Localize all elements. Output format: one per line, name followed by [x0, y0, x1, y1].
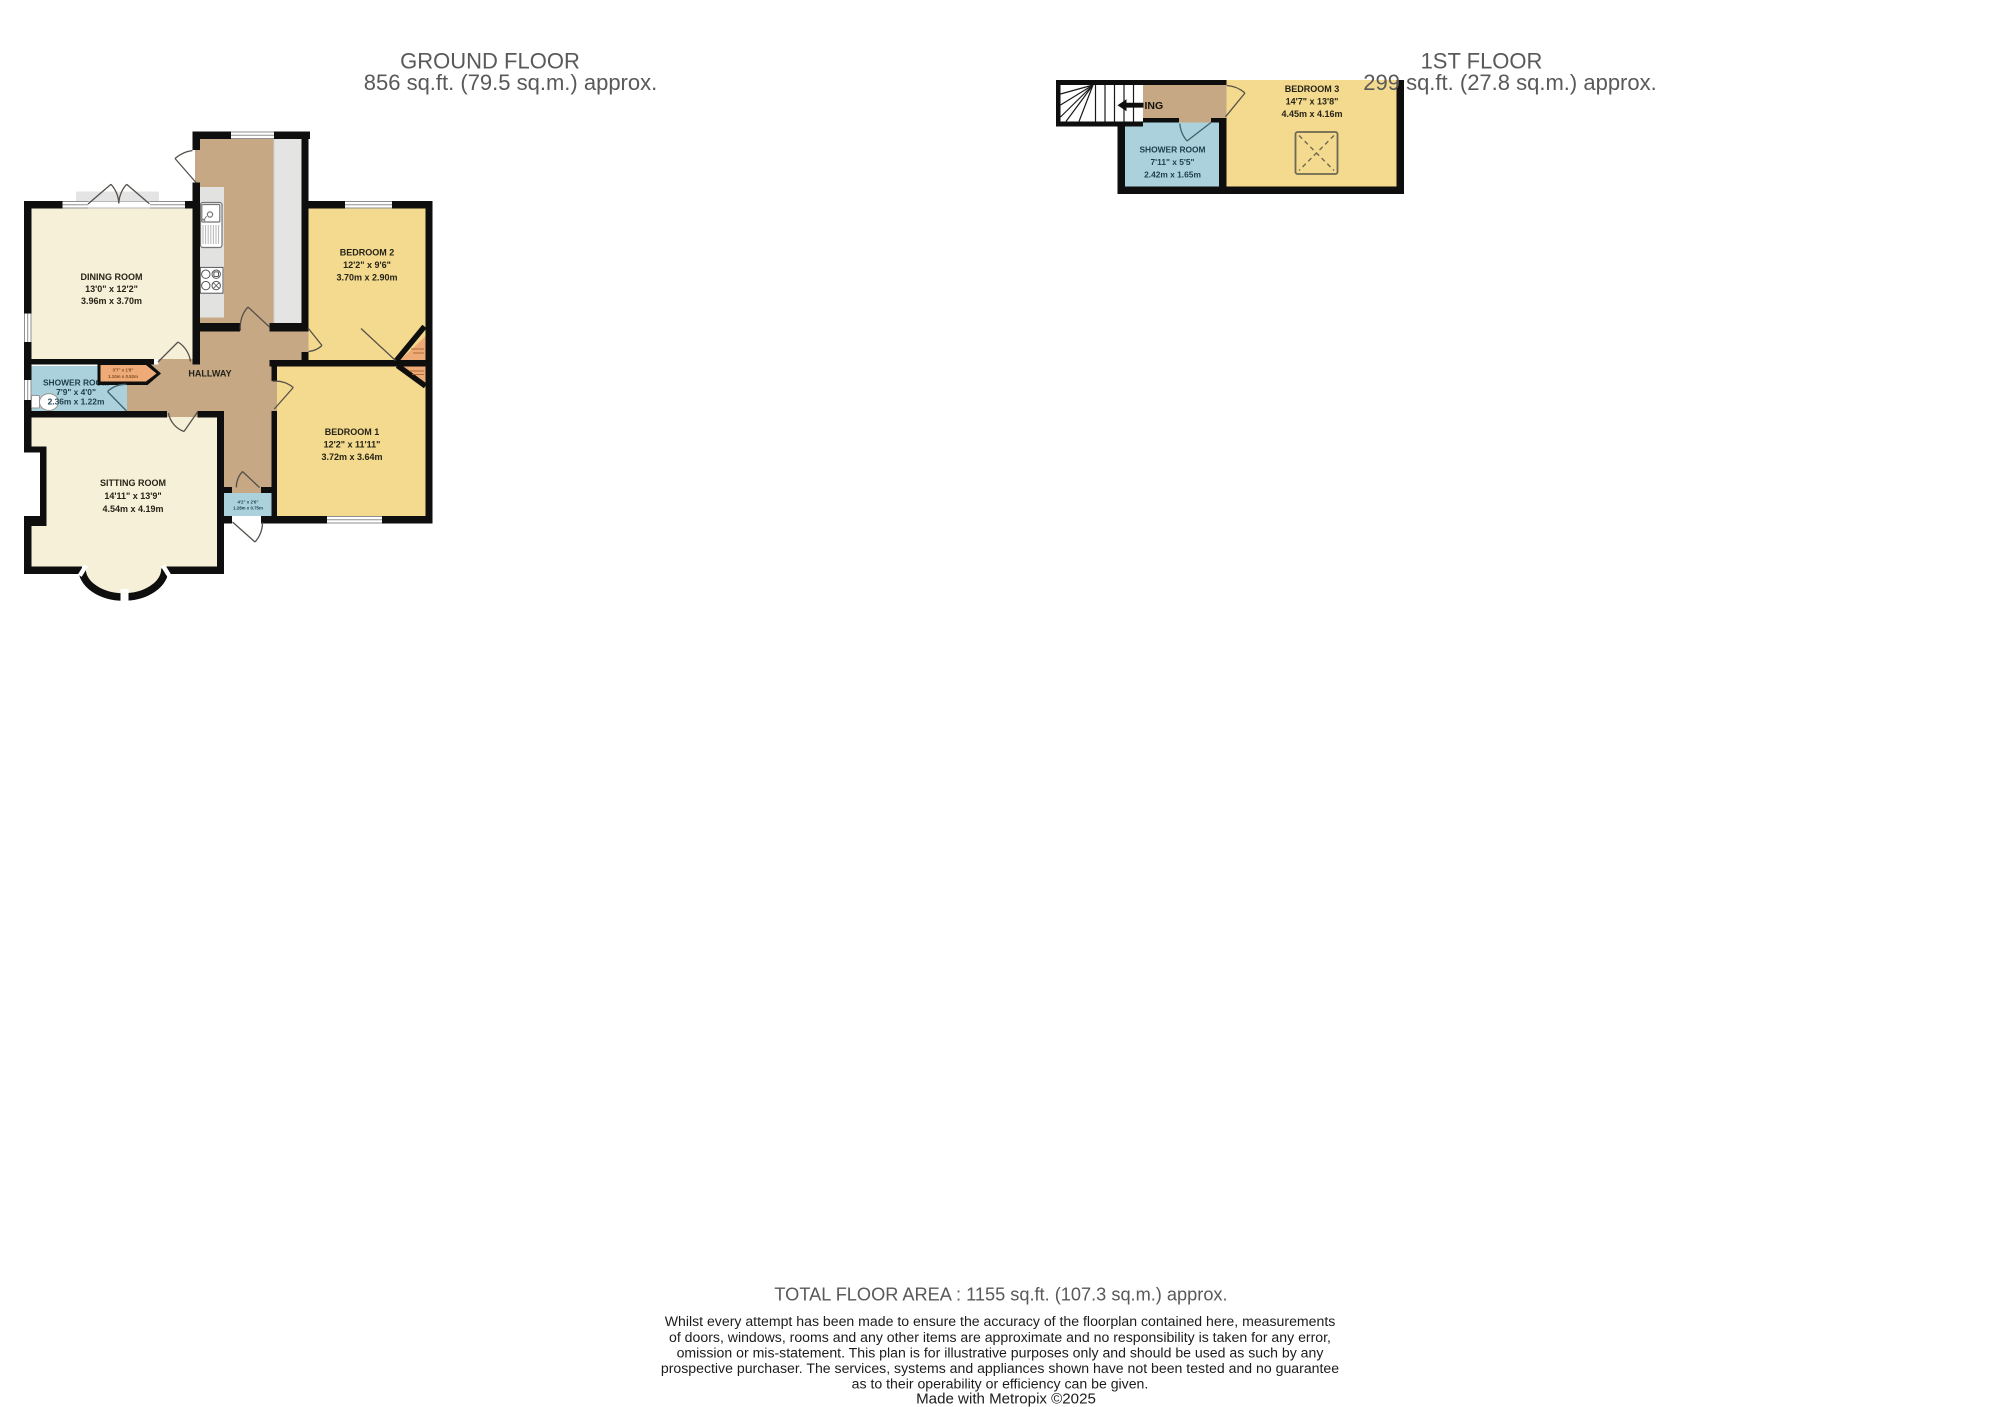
- svg-text:4.45m x 4.16m: 4.45m x 4.16m: [1281, 109, 1342, 119]
- svg-text:13'0" x 12'2": 13'0" x 12'2": [85, 284, 138, 294]
- svg-text:of doors, windows, rooms and a: of doors, windows, rooms and any other i…: [669, 1329, 1331, 1345]
- svg-text:SHOWER ROOM: SHOWER ROOM: [1139, 145, 1205, 155]
- svg-text:prospective purchaser. The ser: prospective purchaser. The services, sys…: [661, 1360, 1339, 1376]
- svg-text:1.28m x 0.75m: 1.28m x 0.75m: [233, 506, 263, 511]
- svg-text:4.54m x 4.19m: 4.54m x 4.19m: [102, 504, 163, 514]
- svg-text:1.10m x 0.52m: 1.10m x 0.52m: [108, 374, 138, 379]
- svg-text:BEDROOM 2: BEDROOM 2: [340, 248, 395, 258]
- svg-text:2.42m x 1.65m: 2.42m x 1.65m: [1144, 170, 1201, 180]
- svg-text:omission or mis-statement. Thi: omission or mis-statement. This plan is …: [677, 1344, 1325, 1360]
- svg-text:Made with Metropix ©2025: Made with Metropix ©2025: [916, 1390, 1096, 1407]
- svg-text:TOTAL FLOOR AREA : 1155 sq.ft.: TOTAL FLOOR AREA : 1155 sq.ft. (107.3 sq…: [774, 1285, 1227, 1305]
- svg-text:DINING ROOM: DINING ROOM: [81, 272, 143, 282]
- svg-text:12'2" x 11'11": 12'2" x 11'11": [324, 440, 381, 450]
- svg-text:14'7" x 13'8": 14'7" x 13'8": [1286, 97, 1339, 107]
- svg-text:3.70m x 2.90m: 3.70m x 2.90m: [336, 273, 397, 283]
- svg-text:12'2" x 9'6": 12'2" x 9'6": [343, 260, 391, 270]
- svg-text:HALLWAY: HALLWAY: [188, 369, 231, 379]
- svg-text:3.96m x 3.70m: 3.96m x 3.70m: [81, 296, 142, 306]
- svg-text:BEDROOM 1: BEDROOM 1: [325, 427, 380, 437]
- svg-text:3'7" x 1'8": 3'7" x 1'8": [113, 368, 134, 373]
- svg-text:3.72m x 3.64m: 3.72m x 3.64m: [321, 452, 382, 462]
- svg-text:ING: ING: [1145, 100, 1164, 112]
- svg-text:7'9" x 4'0": 7'9" x 4'0": [56, 387, 96, 397]
- svg-text:BEDROOM 3: BEDROOM 3: [1285, 84, 1340, 94]
- svg-text:856 sq.ft. (79.5 sq.m.) approx: 856 sq.ft. (79.5 sq.m.) approx.: [364, 70, 657, 95]
- svg-text:14'11" x 13'9": 14'11" x 13'9": [104, 491, 161, 501]
- svg-text:299 sq.ft. (27.8 sq.m.) approx: 299 sq.ft. (27.8 sq.m.) approx.: [1363, 70, 1656, 95]
- svg-text:Whilst every attempt has been: Whilst every attempt has been made to en…: [665, 1313, 1336, 1329]
- svg-text:4'2" x 2'6": 4'2" x 2'6": [238, 500, 259, 505]
- svg-text:7'11" x 5'5": 7'11" x 5'5": [1150, 157, 1194, 167]
- svg-text:SITTING ROOM: SITTING ROOM: [100, 478, 166, 488]
- svg-text:2.36m x 1.22m: 2.36m x 1.22m: [48, 397, 105, 407]
- svg-text:as to their operability or eff: as to their operability or efficiency ca…: [852, 1376, 1149, 1392]
